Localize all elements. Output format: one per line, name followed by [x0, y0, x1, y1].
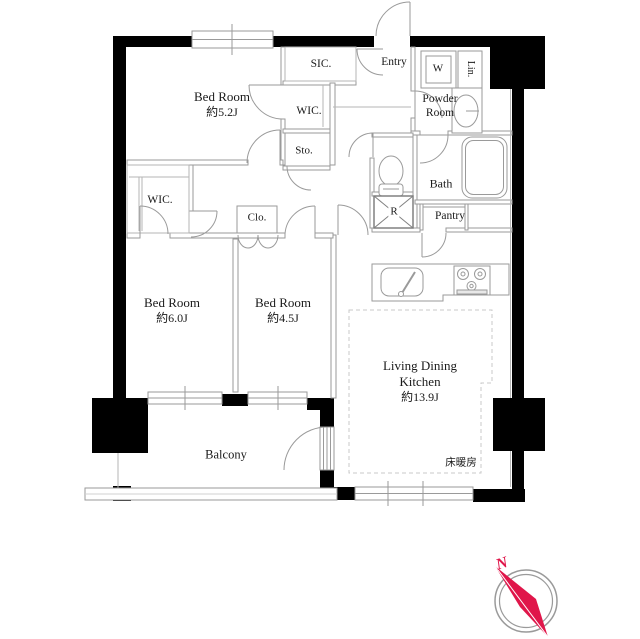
floor-heating-label: 床暖房: [445, 458, 477, 471]
window-bedroom2: [148, 386, 222, 410]
toilet-door: [349, 133, 373, 157]
wall-top-c: [410, 36, 490, 47]
bedroom2-label: Bed Room 約6.0J: [144, 295, 200, 325]
pillar-bottom-right: [493, 398, 545, 451]
linen-label: Lin.: [464, 61, 476, 77]
washer-label: W: [433, 62, 443, 75]
wall-left: [113, 36, 126, 398]
sic-label: SIC.: [311, 57, 332, 71]
pantry-door: [422, 233, 446, 257]
bedroom1-door: [247, 130, 280, 163]
bedroom3-door: [285, 206, 315, 234]
wall-balcony-block: [222, 394, 248, 406]
wall-top-b: [272, 36, 374, 47]
stove-icon: [454, 266, 490, 295]
balcony-railing: [85, 488, 337, 500]
bedroom3-label: Bed Room 約4.5J: [255, 295, 311, 325]
ldk-label: Living Dining Kitchen 約13.9J: [383, 358, 457, 404]
compass-icon: [495, 566, 557, 637]
bath-label: Bath: [430, 177, 453, 192]
window-top: [192, 24, 273, 55]
wic-upper-door: [249, 85, 283, 119]
wic-lower-label: WIC.: [147, 193, 172, 207]
wall-top-a: [113, 36, 193, 47]
bath-door: [420, 135, 448, 163]
entry-door: [376, 2, 410, 36]
bathtub-icon: [462, 137, 507, 198]
bedroom1-label: Bed Room 約5.2J: [194, 89, 250, 119]
toilet-icon: [379, 156, 403, 196]
wall-bottom-right: [473, 489, 525, 502]
wic-upper-label: WIC.: [296, 104, 321, 118]
balcony-door: [284, 427, 334, 470]
floor-plan: Bed Room 約5.2J SIC. WIC. Sto. Entry W Li…: [0, 0, 640, 639]
wall-ldk-left-v1: [320, 398, 334, 427]
pillar-top-right: [490, 36, 545, 89]
kitchen-sink-icon: [381, 268, 423, 297]
sic-door: [357, 49, 383, 75]
pantry-label: Pantry: [435, 209, 465, 223]
window-ldk: [355, 481, 473, 506]
closet-label: Clo.: [248, 211, 267, 224]
powder-room-label: Powder Room: [422, 92, 457, 120]
ldk-door: [338, 205, 368, 235]
pillar-bottom-left: [92, 398, 148, 453]
refrigerator-label: R: [388, 205, 399, 218]
floor-plan-drawing: [0, 0, 640, 639]
wall-right: [512, 89, 524, 398]
window-bedroom3: [248, 386, 307, 410]
bedroom2-door: [140, 206, 168, 234]
balcony-label: Balcony: [205, 447, 247, 462]
storage-label: Sto.: [295, 144, 312, 157]
entry-label: Entry: [381, 55, 407, 69]
